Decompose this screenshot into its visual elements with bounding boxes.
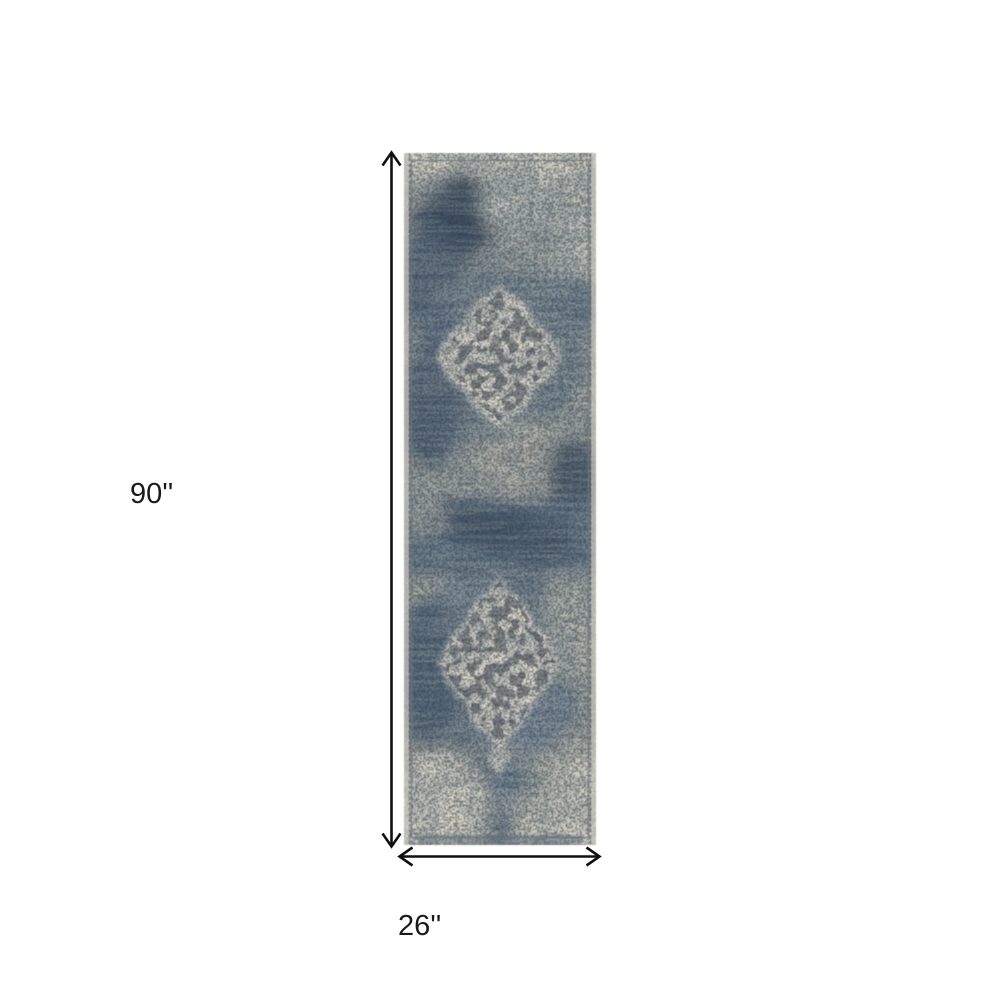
svg-text:26'': 26'' bbox=[398, 910, 441, 942]
svg-text:90'': 90'' bbox=[130, 478, 173, 510]
